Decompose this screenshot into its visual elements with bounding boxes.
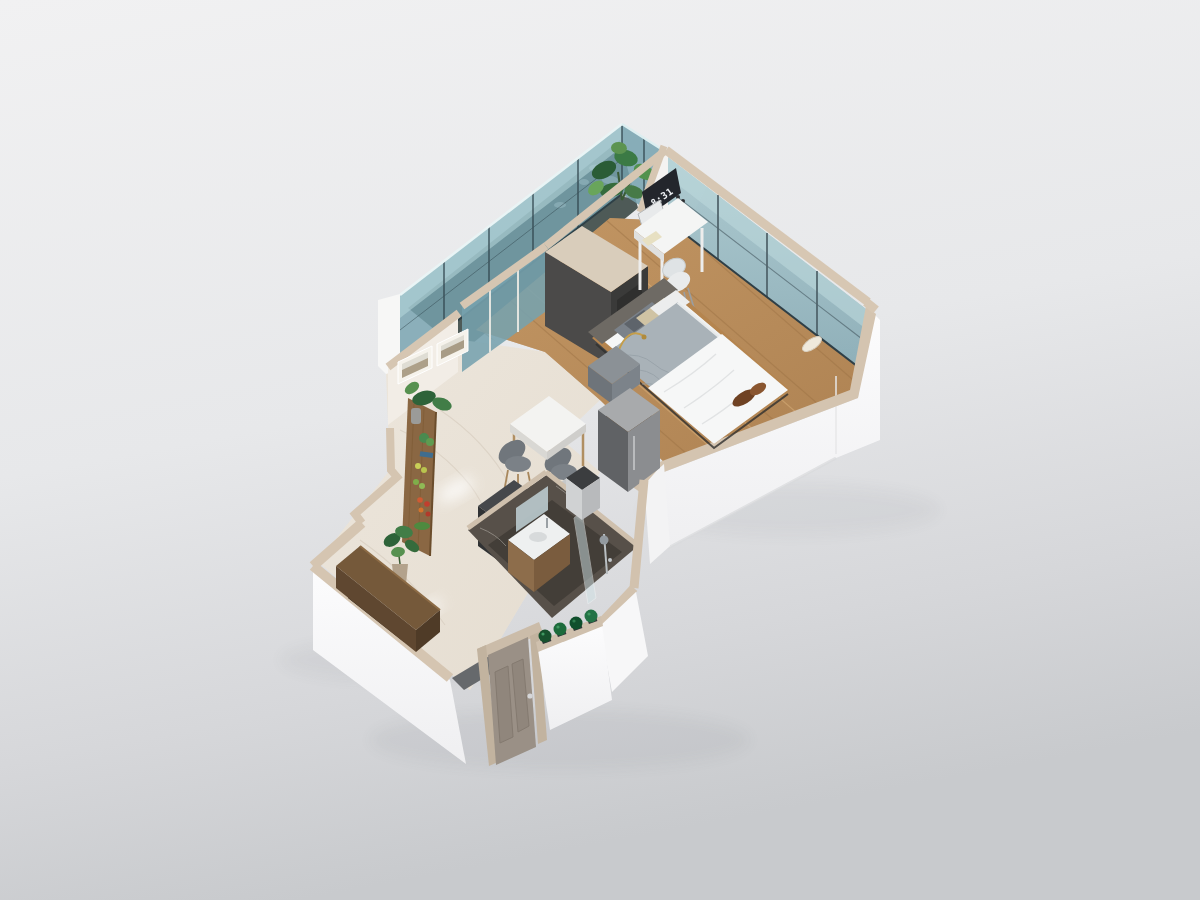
board-bowl [414, 522, 430, 530]
door-leaf [488, 637, 536, 765]
board-vase [411, 408, 421, 424]
shower-knob [608, 558, 612, 562]
shower-head [600, 536, 609, 545]
floorplan-render: 8:31 [0, 0, 1200, 900]
roofline-trims [866, 302, 876, 310]
door-knob [527, 693, 532, 698]
isometric-apartment-scene: 8:31 [0, 0, 1200, 900]
